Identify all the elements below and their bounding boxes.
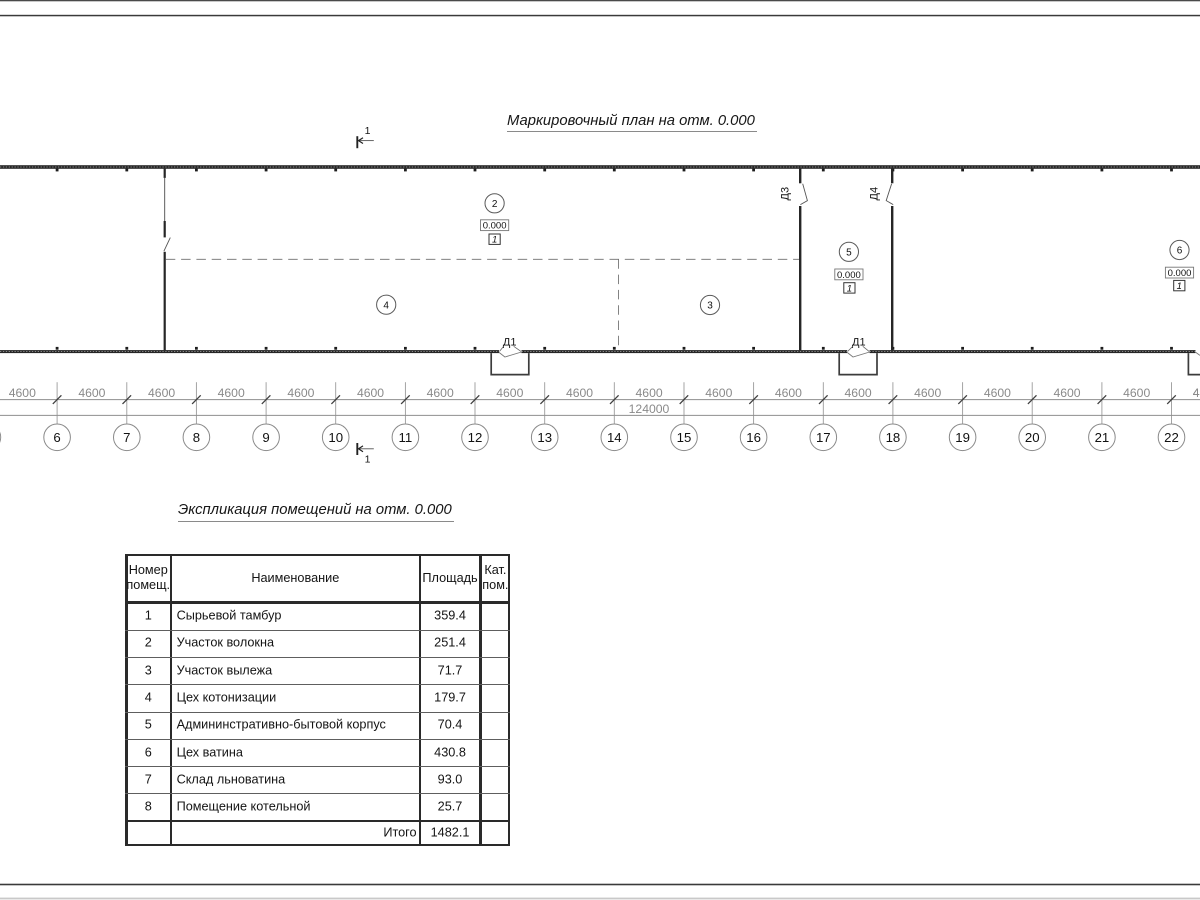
svg-text:1: 1 [847, 283, 852, 294]
svg-text:2: 2 [492, 199, 498, 210]
svg-text:0.000: 0.000 [483, 221, 507, 232]
svg-text:8: 8 [193, 430, 200, 445]
svg-text:20: 20 [1025, 430, 1040, 445]
svg-text:4600: 4600 [148, 386, 175, 400]
svg-text:Д3: Д3 [780, 187, 792, 201]
svg-text:4600: 4600 [427, 386, 454, 400]
svg-text:4600: 4600 [78, 386, 105, 400]
svg-text:4600: 4600 [1123, 386, 1150, 400]
svg-text:9: 9 [262, 430, 269, 445]
svg-text:15: 15 [677, 430, 692, 445]
svg-text:11: 11 [399, 430, 413, 445]
svg-text:19: 19 [955, 430, 970, 445]
svg-text:4600: 4600 [496, 386, 523, 400]
svg-text:5: 5 [846, 247, 852, 258]
svg-text:1: 1 [1177, 281, 1182, 292]
svg-text:12: 12 [468, 430, 483, 445]
svg-text:22: 22 [1164, 430, 1179, 445]
svg-text:1: 1 [365, 125, 371, 137]
svg-text:4600: 4600 [845, 386, 872, 400]
svg-text:10: 10 [328, 430, 343, 445]
svg-text:7: 7 [123, 430, 130, 445]
svg-text:16: 16 [746, 430, 761, 445]
svg-text:4600: 4600 [636, 386, 663, 400]
svg-text:4600: 4600 [705, 386, 732, 400]
svg-text:4600: 4600 [357, 386, 384, 400]
svg-text:6: 6 [1177, 246, 1183, 257]
svg-text:0.000: 0.000 [1168, 268, 1192, 279]
svg-text:124000: 124000 [629, 402, 670, 416]
svg-text:0.000: 0.000 [837, 270, 861, 281]
svg-text:4600: 4600 [1193, 386, 1200, 400]
svg-text:17: 17 [816, 430, 831, 445]
svg-text:13: 13 [537, 430, 552, 445]
svg-text:4600: 4600 [9, 386, 36, 400]
svg-text:4600: 4600 [566, 386, 593, 400]
svg-text:Д4: Д4 [869, 187, 881, 201]
svg-text:4600: 4600 [984, 386, 1011, 400]
svg-text:4600: 4600 [775, 386, 802, 400]
svg-text:1: 1 [365, 454, 371, 466]
svg-text:4600: 4600 [1053, 386, 1080, 400]
svg-text:6: 6 [53, 430, 60, 445]
svg-text:4: 4 [383, 300, 389, 311]
svg-text:14: 14 [607, 430, 622, 445]
svg-text:18: 18 [886, 430, 901, 445]
svg-text:1: 1 [492, 235, 497, 246]
svg-text:3: 3 [707, 301, 713, 312]
svg-text:4600: 4600 [287, 386, 314, 400]
svg-text:4600: 4600 [914, 386, 941, 400]
svg-text:4600: 4600 [218, 386, 245, 400]
svg-text:21: 21 [1095, 430, 1110, 445]
